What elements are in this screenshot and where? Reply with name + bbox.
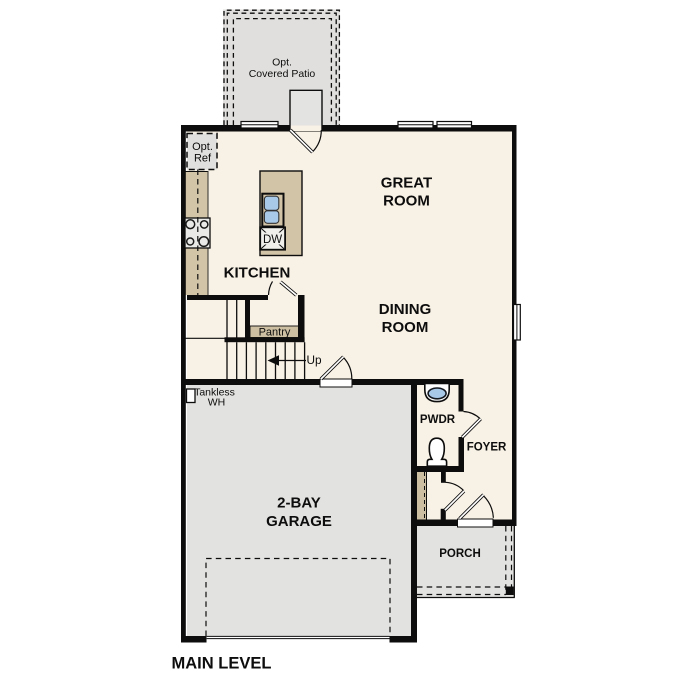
svg-text:Opt.: Opt. (272, 57, 292, 69)
svg-text:MAIN LEVEL: MAIN LEVEL (172, 655, 272, 673)
svg-text:2-BAY: 2-BAY (277, 495, 321, 512)
svg-text:DINING: DINING (379, 301, 432, 318)
svg-text:Ref: Ref (194, 152, 212, 164)
svg-text:WH: WH (208, 397, 226, 409)
svg-text:KITCHEN: KITCHEN (224, 265, 291, 282)
svg-text:FOYER: FOYER (467, 442, 507, 454)
svg-text:GARAGE: GARAGE (266, 513, 332, 530)
svg-text:Up: Up (307, 353, 323, 367)
svg-text:PORCH: PORCH (439, 548, 481, 560)
svg-text:ROOM: ROOM (383, 193, 430, 210)
svg-text:PWDR: PWDR (420, 414, 456, 426)
svg-text:ROOM: ROOM (382, 319, 429, 336)
svg-text:GREAT: GREAT (381, 175, 432, 192)
svg-text:Covered Patio: Covered Patio (249, 68, 316, 80)
svg-text:Pantry: Pantry (259, 327, 291, 339)
svg-text:DW: DW (263, 234, 282, 246)
svg-text:Opt.: Opt. (192, 141, 213, 153)
